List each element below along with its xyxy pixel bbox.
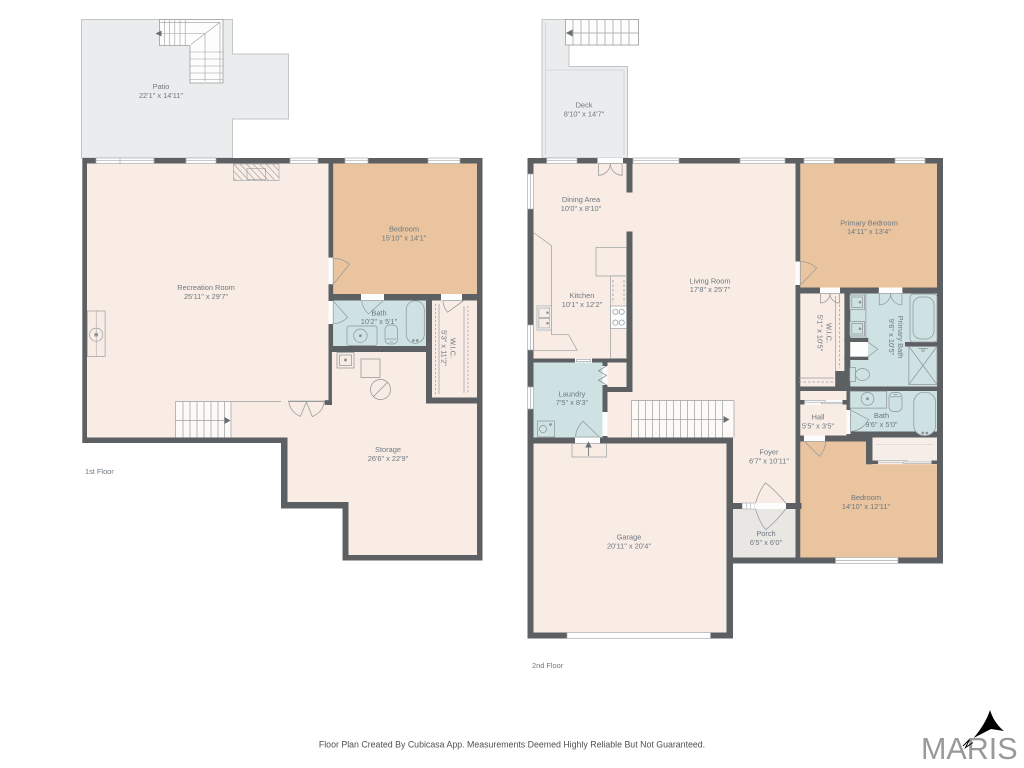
svg-text:Primary Bedroom: Primary Bedroom [840, 218, 898, 227]
svg-text:9'6" x 10'5": 9'6" x 10'5" [887, 319, 896, 356]
svg-text:Bath: Bath [874, 411, 889, 420]
svg-text:7'5" x 8'3": 7'5" x 8'3" [556, 398, 589, 407]
svg-text:25'11" x 29'7": 25'11" x 29'7" [184, 292, 228, 301]
svg-text:Bedroom: Bedroom [851, 493, 881, 502]
svg-text:Primary Bath: Primary Bath [896, 316, 905, 359]
svg-text:2nd Floor: 2nd Floor [532, 661, 564, 670]
svg-text:Patio: Patio [153, 82, 170, 91]
svg-text:Porch: Porch [756, 529, 775, 538]
svg-text:Foyer: Foyer [760, 448, 779, 457]
svg-text:Dining Area: Dining Area [562, 195, 601, 204]
svg-text:1st Floor: 1st Floor [85, 467, 114, 476]
svg-text:5'1" x 10'5": 5'1" x 10'5" [816, 315, 825, 352]
svg-text:22'1" x 14'11": 22'1" x 14'11" [139, 91, 183, 100]
svg-text:Bath: Bath [371, 308, 386, 317]
svg-text:14'10" x 12'11": 14'10" x 12'11" [842, 502, 891, 511]
svg-text:26'6" x 22'9": 26'6" x 22'9" [368, 454, 409, 463]
svg-text:Laundry: Laundry [559, 389, 586, 398]
svg-text:8'10" x 14'7": 8'10" x 14'7" [564, 109, 605, 118]
svg-text:10'1" x 12'2": 10'1" x 12'2" [562, 300, 603, 309]
svg-text:20'11" x 20'4": 20'11" x 20'4" [607, 541, 651, 550]
svg-text:Recreation Room: Recreation Room [177, 283, 235, 292]
svg-text:Kitchen: Kitchen [570, 291, 595, 300]
svg-text:6'7" x 10'11": 6'7" x 10'11" [749, 456, 789, 465]
svg-text:17'8" x 25'7": 17'8" x 25'7" [690, 285, 731, 294]
svg-text:W.I.C.: W.I.C. [449, 338, 458, 358]
svg-text:Bedroom: Bedroom [389, 225, 419, 234]
svg-text:Garage: Garage [617, 533, 642, 542]
svg-text:9'6" x 5'0": 9'6" x 5'0" [865, 420, 898, 429]
svg-text:10'2" x 5'1": 10'2" x 5'1" [361, 317, 398, 326]
svg-text:5'5" x 3'5": 5'5" x 3'5" [802, 421, 835, 430]
svg-text:15'10" x 14'1": 15'10" x 14'1" [382, 233, 427, 242]
svg-text:5'3" x 11'2": 5'3" x 11'2" [440, 330, 449, 366]
svg-text:6'5" x 6'0": 6'5" x 6'0" [750, 538, 783, 547]
svg-text:Living Room: Living Room [689, 276, 730, 285]
svg-text:Storage: Storage [375, 445, 401, 454]
svg-text:W.I.C.: W.I.C. [825, 323, 834, 343]
svg-text:10'0" x 8'10": 10'0" x 8'10" [561, 204, 602, 213]
svg-text:Deck: Deck [576, 101, 593, 110]
svg-text:Hall: Hall [812, 413, 825, 422]
svg-text:14'11" x 13'4": 14'11" x 13'4" [847, 227, 891, 236]
svg-text:Floor Plan Created By Cubicasa: Floor Plan Created By Cubicasa App. Meas… [319, 740, 705, 750]
svg-text:MARIS: MARIS [921, 732, 1018, 766]
